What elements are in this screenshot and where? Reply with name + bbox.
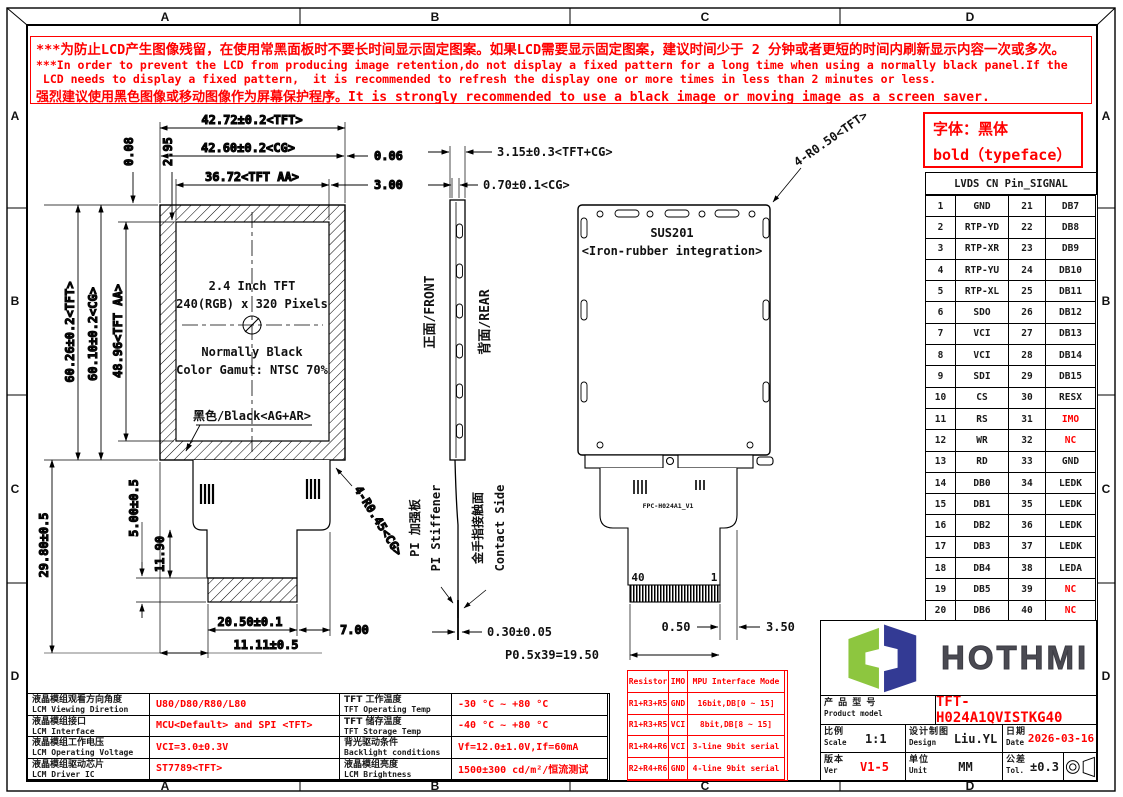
pin-number: 33 — [1009, 451, 1046, 472]
pin-signal: VCI — [956, 344, 1009, 365]
pin-number: 13 — [926, 451, 956, 472]
spec-value: 1500±300 cd/m²/恒流测试 — [452, 759, 608, 781]
pin-signal: RD — [956, 451, 1009, 472]
pin-number: 5 — [926, 280, 956, 301]
pin-40-label: 40 — [631, 571, 644, 584]
spec-label: TFT 工作温度TFT Operating Temp — [340, 694, 452, 716]
res-cell: GND — [669, 693, 688, 715]
dim-tail-length: 11.90 — [153, 536, 167, 572]
spec-label: 液晶模组接口LCM Interface — [28, 716, 150, 738]
interface-mode-table: Resistor IMO MPU Interface Mode R1+R3+R5… — [627, 670, 788, 781]
tolerance-value: ±0.3 — [1026, 753, 1063, 780]
product-model-label: 产 品 型 号 Product model — [821, 696, 883, 724]
design-label: 设计制图Design — [906, 725, 949, 752]
pin-signal: IMO — [1046, 408, 1096, 429]
pin-number: 19 — [926, 578, 956, 599]
res-cell: R1+R3+R5 — [628, 693, 669, 715]
pin-number: 26 — [1009, 301, 1046, 322]
pin-number: 17 — [926, 536, 956, 557]
zone-right-d: D — [1102, 669, 1111, 683]
pin-number: 32 — [1009, 429, 1046, 450]
pin-signal: DB3 — [956, 536, 1009, 557]
spec-label: 液晶模组亮度LCM Brightness — [340, 759, 452, 781]
unit-label: 单位Unit — [906, 753, 929, 780]
front-side-label: 正面/FRONT — [423, 275, 438, 348]
warning-line-en1: ***In order to prevent the LCD from prod… — [36, 58, 1086, 72]
pin-signal: LEDK — [1046, 514, 1096, 535]
surface-treatment-label: 黑色/Black<AG+AR> — [193, 408, 311, 423]
fpc-part-number: FPC-H024A1_V1 — [643, 502, 694, 510]
res-cell: 4-line 9bit serial — [688, 758, 785, 780]
pin-number: 11 — [926, 408, 956, 429]
fpc-radius-note: 4-R0.45<CG> — [351, 483, 405, 558]
res-header: Resistor — [628, 671, 669, 693]
version-unit-tol-row: 版本Ver V1-5 单位Unit MM 公差Tol. ±0.3 — [821, 753, 1096, 780]
tolerance-label: 公差Tol. — [1003, 753, 1026, 780]
res-cell: R1+R3+R5 — [628, 715, 669, 737]
res-cell: 8bit,DB[8 ~ 15] — [688, 715, 785, 737]
pin-1-label: 1 — [711, 571, 718, 584]
res-cell: VCI — [669, 715, 688, 737]
pin-signal: DB5 — [956, 578, 1009, 599]
dim-contact-offset: 7.00 — [340, 623, 369, 637]
spec-value: U80/D80/R80/L80 — [150, 694, 340, 716]
dim-height-aa: 48.96<TFT AA> — [111, 284, 125, 378]
spec-value: VCI=3.0±0.3V — [150, 737, 340, 759]
pin-signal: DB0 — [956, 472, 1009, 493]
pin-signal: NC — [1046, 578, 1096, 599]
zone-bottom-a: A — [161, 779, 170, 793]
pin-signal: DB12 — [1046, 301, 1096, 322]
zone-bottom-c: C — [701, 779, 710, 793]
dim-gap-cg: 0.06 — [374, 149, 403, 163]
res-header: MPU Interface Mode — [688, 671, 785, 693]
pin-signal: DB8 — [1046, 216, 1096, 237]
scale-design-date-row: 比例Scale 1:1 设计制图Design Liu.YL 日期Date 202… — [821, 725, 1096, 753]
pin-signal: RESX — [1046, 387, 1096, 408]
pin-number: 18 — [926, 557, 956, 578]
dim-offset-295: 2.95 — [161, 137, 175, 166]
warning-line-mix: 强烈建议使用黑色图像或移动图像作为屏幕保护程序。It is strongly r… — [36, 86, 1086, 104]
dim-fpc-margin: 3.50 — [766, 620, 795, 634]
date-value: 2026-03-16 — [1026, 725, 1096, 752]
pin-signal: RTP-XR — [956, 238, 1009, 259]
stiffener-label-cn: PI 加强板 — [407, 498, 422, 557]
title-block: HOTHMI 产 品 型 号 Product model TFT-H024A1Q… — [820, 620, 1097, 781]
pin-number: 35 — [1009, 493, 1046, 514]
pin-number: 6 — [926, 301, 956, 322]
spec-label: 背光驱动条件Backlight conditions — [340, 737, 452, 759]
panel-gamut-label: Color Gamut: NTSC 70% — [176, 363, 328, 377]
pin-number: 10 — [926, 387, 956, 408]
zone-right-b: B — [1102, 294, 1111, 308]
spec-label: 液晶模组工作电压LCM Operating Voltage — [28, 737, 150, 759]
pin-number: 15 — [926, 493, 956, 514]
scale-label: 比例Scale — [821, 725, 847, 752]
pin-table-title: LVDS CN Pin_SIGNAL — [925, 172, 1097, 195]
pin-number: 7 — [926, 323, 956, 344]
shield-material-label: SUS201 — [650, 226, 693, 240]
typeface-note-cn: 字体：黑体 — [933, 116, 1073, 142]
pin-number: 31 — [1009, 408, 1046, 429]
company-logo: HOTHMI — [821, 621, 1096, 696]
pin-number: 38 — [1009, 557, 1046, 578]
pin-number: 24 — [1009, 259, 1046, 280]
design-value: Liu.YL — [949, 725, 1002, 752]
spec-value: -40 °C ~ +80 °C — [452, 716, 608, 738]
res-cell: GND — [669, 758, 688, 780]
screen-saver-warning: ***为防止LCD产生图像残留，在使用常黑面板时不要长时间显示固定图案。如果LC… — [30, 36, 1092, 104]
dim-pin-end: 0.50 — [662, 620, 691, 634]
datasheet-page: A B C D A B C D A B C D A B C D 2.4 Inch… — [0, 0, 1123, 797]
date-label: 日期Date — [1003, 725, 1026, 752]
pin-number: 37 — [1009, 536, 1046, 557]
dim-contact-width: 20.50±0.1 — [217, 615, 282, 629]
pin-number: 14 — [926, 472, 956, 493]
panel-resolution-label: 240(RGB) x 320 Pixels — [176, 297, 328, 311]
dim-fpc-thickness: 0.30±0.05 — [487, 625, 552, 639]
dim-width-tft: 42.72±0.2<TFT> — [201, 113, 302, 127]
version-value: V1-5 — [844, 753, 905, 780]
pin-number: 23 — [1009, 238, 1046, 259]
spec-value: ST7789<TFT> — [150, 759, 340, 781]
pin-signal: LEDK — [1046, 472, 1096, 493]
pin-signal: DB9 — [1046, 238, 1096, 259]
pin-number: 9 — [926, 365, 956, 386]
pin-number: 29 — [1009, 365, 1046, 386]
dim-width-aa: 36.72<TFT AA> — [205, 170, 299, 184]
warning-line-cn: ***为防止LCD产生图像残留，在使用常黑面板时不要长时间显示固定图案。如果LC… — [36, 38, 1086, 58]
zone-top-d: D — [966, 10, 975, 24]
pin-signal: DB14 — [1046, 344, 1096, 365]
zone-right-c: C — [1102, 482, 1111, 496]
product-model-value: TFT-H024A1QVISTKG40 — [936, 696, 1096, 724]
logo-wordmark: HOTHMI — [941, 639, 1089, 677]
spec-label: 液晶模组驱动芯片LCM Driver IC — [28, 759, 150, 781]
dim-height-tft: 60.26±0.2<TFT> — [63, 281, 77, 382]
contact-side-label-cn: 金手指接触面 — [470, 492, 485, 565]
shield-radius-note: 4-R0.50<TFT> — [791, 108, 870, 169]
pin-number: 28 — [1009, 344, 1046, 365]
pin-signal: DB10 — [1046, 259, 1096, 280]
spec-value: MCU<Default> and SPI <TFT> — [150, 716, 340, 738]
pin-signal-table: LVDS CN Pin_SIGNAL 1GND21DB7 2RTP-YD22DB… — [925, 172, 1097, 622]
contact-side-label-en: Contact Side — [493, 485, 507, 572]
zone-left-d: D — [11, 669, 20, 683]
res-cell: R2+R4+R6 — [628, 758, 669, 780]
pin-signal: DB7 — [1046, 195, 1096, 216]
pin-signal: LEDA — [1046, 557, 1096, 578]
pin-signal: NC — [1046, 429, 1096, 450]
pin-number: 22 — [1009, 216, 1046, 237]
dim-contact-x: 11.11±0.5 — [233, 638, 298, 652]
pin-number: 30 — [1009, 387, 1046, 408]
zone-bottom-d: D — [966, 779, 975, 793]
spec-label: 液晶模组观看方向角度LCM Viewing Diretion — [28, 694, 150, 716]
dim-height-cg: 60.10±0.2<CG> — [86, 287, 100, 381]
pin-number: 2 — [926, 216, 956, 237]
pin-signal: RS — [956, 408, 1009, 429]
pin-number: 12 — [926, 429, 956, 450]
pin-signal: SDO — [956, 301, 1009, 322]
pin-signal: DB11 — [1046, 280, 1096, 301]
pin-signal: DB4 — [956, 557, 1009, 578]
pin-number: 40 — [1009, 600, 1046, 621]
res-cell: VCI — [669, 736, 688, 758]
pin-number: 39 — [1009, 578, 1046, 599]
zone-top-b: B — [431, 10, 440, 24]
pin-signal: GND — [1046, 451, 1096, 472]
zone-top-c: C — [701, 10, 710, 24]
pin-number: 4 — [926, 259, 956, 280]
spec-label: TFT 储存温度TFT Storage Temp — [340, 716, 452, 738]
pin-table-grid: 1GND21DB7 2RTP-YD22DB8 3RTP-XR23DB9 4RTP… — [925, 195, 1097, 622]
pin-number: 20 — [926, 600, 956, 621]
pin-number: 3 — [926, 238, 956, 259]
pin-signal: DB15 — [1046, 365, 1096, 386]
dim-contact-height: 5.00±0.5 — [127, 479, 141, 537]
pin-signal: WR — [956, 429, 1009, 450]
typeface-note-en: bold（typeface） — [933, 142, 1073, 168]
zone-right-a: A — [1102, 109, 1111, 123]
panel-size-label: 2.4 Inch TFT — [209, 279, 296, 293]
pin-number: 1 — [926, 195, 956, 216]
res-cell: 3-line 9bit serial — [688, 736, 785, 758]
projection-symbol-icon — [1064, 755, 1096, 779]
pin-number: 27 — [1009, 323, 1046, 344]
pin-signal: LEDK — [1046, 493, 1096, 514]
pin-signal: NC — [1046, 600, 1096, 621]
lcm-spec-table: 液晶模组观看方向角度LCM Viewing Diretion U80/D80/R… — [27, 693, 610, 781]
dim-cg-thickness: 0.70±0.1<CG> — [483, 178, 570, 192]
scale-value: 1:1 — [847, 725, 905, 752]
panel-mode-label: Normally Black — [201, 345, 303, 359]
version-label: 版本Ver — [821, 753, 844, 780]
pin-signal: RTP-YU — [956, 259, 1009, 280]
zone-left-c: C — [11, 482, 20, 496]
res-header: IMO — [669, 671, 688, 693]
spec-value: Vf=12.0±1.0V,If=60mA — [452, 737, 608, 759]
unit-value: MM — [929, 753, 1002, 780]
pin-signal: DB6 — [956, 600, 1009, 621]
product-model-row: 产 品 型 号 Product model TFT-H024A1QVISTKG4… — [821, 696, 1096, 725]
pin-signal: DB2 — [956, 514, 1009, 535]
pin-number: 25 — [1009, 280, 1046, 301]
pin-signal: GND — [956, 195, 1009, 216]
pin-number: 34 — [1009, 472, 1046, 493]
pin-signal: RTP-YD — [956, 216, 1009, 237]
dim-border-aa: 3.00 — [374, 178, 403, 192]
shield-material-note: <Iron-rubber integration> — [582, 244, 763, 258]
dim-pin-pitch: P0.5x39=19.50 — [505, 648, 599, 662]
stiffener-label-en: PI Stiffener — [429, 485, 443, 572]
dim-fpc-length: 29.80±0.5 — [37, 512, 51, 577]
typeface-note: 字体：黑体 bold（typeface） — [923, 112, 1083, 168]
pin-signal: SDI — [956, 365, 1009, 386]
pin-signal: RTP-XL — [956, 280, 1009, 301]
pin-signal: VCI — [956, 323, 1009, 344]
res-cell: R1+R4+R6 — [628, 736, 669, 758]
pin-number: 16 — [926, 514, 956, 535]
zone-bottom-b: B — [431, 779, 440, 793]
zone-left-a: A — [11, 109, 20, 123]
pin-signal: DB13 — [1046, 323, 1096, 344]
dim-total-thickness: 3.15±0.3<TFT+CG> — [497, 145, 613, 159]
zone-left-b: B — [11, 294, 20, 308]
zone-top-a: A — [161, 10, 170, 24]
spec-value: -30 °C ~ +80 °C — [452, 694, 608, 716]
pin-number: 8 — [926, 344, 956, 365]
pin-signal: DB1 — [956, 493, 1009, 514]
pin-signal: LEDK — [1046, 536, 1096, 557]
dim-offset-008: 0.08 — [122, 137, 136, 166]
dim-width-cg: 42.60±0.2<CG> — [201, 141, 295, 155]
pin-number: 21 — [1009, 195, 1046, 216]
hothmi-logo-icon — [841, 622, 933, 694]
pin-number: 36 — [1009, 514, 1046, 535]
front-view: 2.4 Inch TFT 240(RGB) x 320 Pixels Norma… — [160, 205, 345, 602]
warning-line-en2: LCD needs to display a fixed pattern, it… — [36, 72, 1086, 86]
res-cell: 16bit,DB[0 ~ 15] — [688, 693, 785, 715]
rear-side-label: 背面/REAR — [477, 289, 493, 354]
pin-signal: CS — [956, 387, 1009, 408]
